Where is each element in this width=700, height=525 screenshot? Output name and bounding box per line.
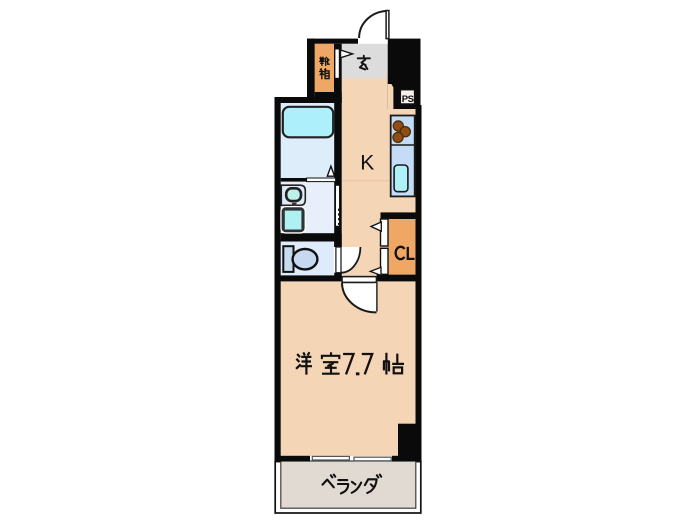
svg-text:K: K xyxy=(360,151,374,174)
svg-text:PS: PS xyxy=(402,94,414,105)
